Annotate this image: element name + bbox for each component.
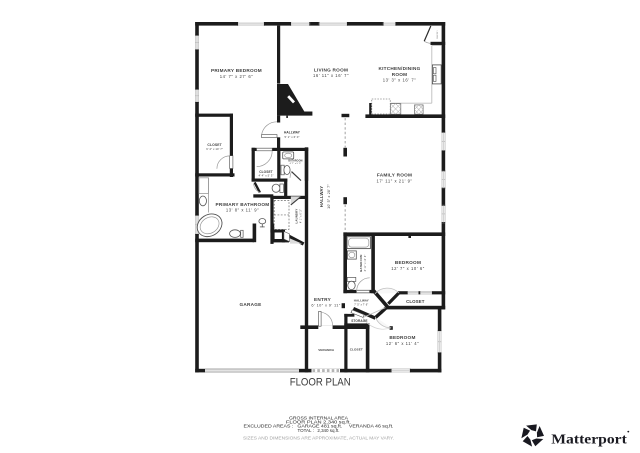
svg-text:ROOM: ROOM — [392, 72, 408, 77]
svg-text:12' 7" x 10' 6": 12' 7" x 10' 6" — [391, 266, 425, 271]
svg-text:SIZES AND DIMENSIONS ARE APPRO: SIZES AND DIMENSIONS ARE APPROXIMATE, AC… — [243, 435, 394, 441]
svg-text:LIVING ROOM: LIVING ROOM — [314, 67, 348, 72]
svg-text:HALLWAY: HALLWAY — [319, 186, 324, 208]
svg-text:BATHROOM: BATHROOM — [288, 159, 302, 162]
svg-text:BEDROOM: BEDROOM — [389, 335, 415, 340]
svg-text:4' 11" x 10' 4": 4' 11" x 10' 4" — [365, 255, 367, 272]
svg-text:FLOOR PLAN: FLOOR PLAN — [290, 376, 351, 388]
svg-text:STORAGE: STORAGE — [351, 319, 367, 323]
svg-text:4' 7" x 5' 5": 4' 7" x 5' 5" — [290, 163, 302, 165]
svg-text:LAUNDRY: LAUNDRY — [295, 209, 299, 224]
svg-text:PANTRY: PANTRY — [436, 30, 439, 39]
svg-text:6' 4" x 10' 7": 6' 4" x 10' 7" — [206, 147, 223, 151]
svg-text:PRIMARY BEDROOM: PRIMARY BEDROOM — [211, 68, 262, 73]
svg-text:ENTRY: ENTRY — [314, 297, 332, 302]
svg-text:13' 3" x 16' 7": 13' 3" x 16' 7" — [383, 78, 417, 83]
svg-text:CLOSET: CLOSET — [406, 299, 425, 304]
svg-text:16' 11" x 16' 7": 16' 11" x 16' 7" — [313, 73, 349, 78]
svg-text:Matterport: Matterport — [551, 431, 627, 446]
svg-text:4' 4" x 5' 3": 4' 4" x 5' 3" — [258, 173, 273, 177]
svg-text:TOTAL : 2,340 sq.ft.: TOTAL : 2,340 sq.ft. — [298, 428, 340, 434]
svg-text:10' 5" x 28' 7": 10' 5" x 28' 7" — [327, 184, 331, 209]
svg-text:17' 11" x 21' 9": 17' 11" x 21' 9" — [376, 178, 412, 183]
svg-text:VERANDA: VERANDA — [318, 348, 335, 352]
svg-text:4' 1" x 6' 2": 4' 1" x 6' 2" — [301, 209, 303, 223]
svg-text:6' 10" x 9' 11": 6' 10" x 9' 11" — [311, 303, 340, 308]
svg-text:13' 8" x 11' 9": 13' 8" x 11' 9" — [226, 208, 259, 213]
svg-text:FAMILY ROOM: FAMILY ROOM — [377, 173, 412, 178]
svg-text:HALLWAY: HALLWAY — [354, 298, 369, 302]
svg-text:BATHROOM: BATHROOM — [359, 254, 363, 272]
svg-text:7' 5" x 7' 6": 7' 5" x 7' 6" — [354, 302, 368, 306]
svg-text:CLOSET: CLOSET — [350, 348, 363, 352]
svg-text:GARAGE: GARAGE — [239, 302, 261, 307]
svg-text:12' 6" x 11' 4": 12' 6" x 11' 4" — [386, 341, 419, 346]
svg-text:KITCHEN/DINING: KITCHEN/DINING — [378, 66, 420, 71]
svg-text:BEDROOM: BEDROOM — [395, 260, 421, 265]
svg-text:14' 7" x 27' 6": 14' 7" x 27' 6" — [220, 74, 254, 79]
svg-text:5' 1" x 6' 0": 5' 1" x 6' 0" — [284, 135, 299, 139]
svg-text:PRIMARY BATHROOM: PRIMARY BATHROOM — [216, 202, 270, 207]
